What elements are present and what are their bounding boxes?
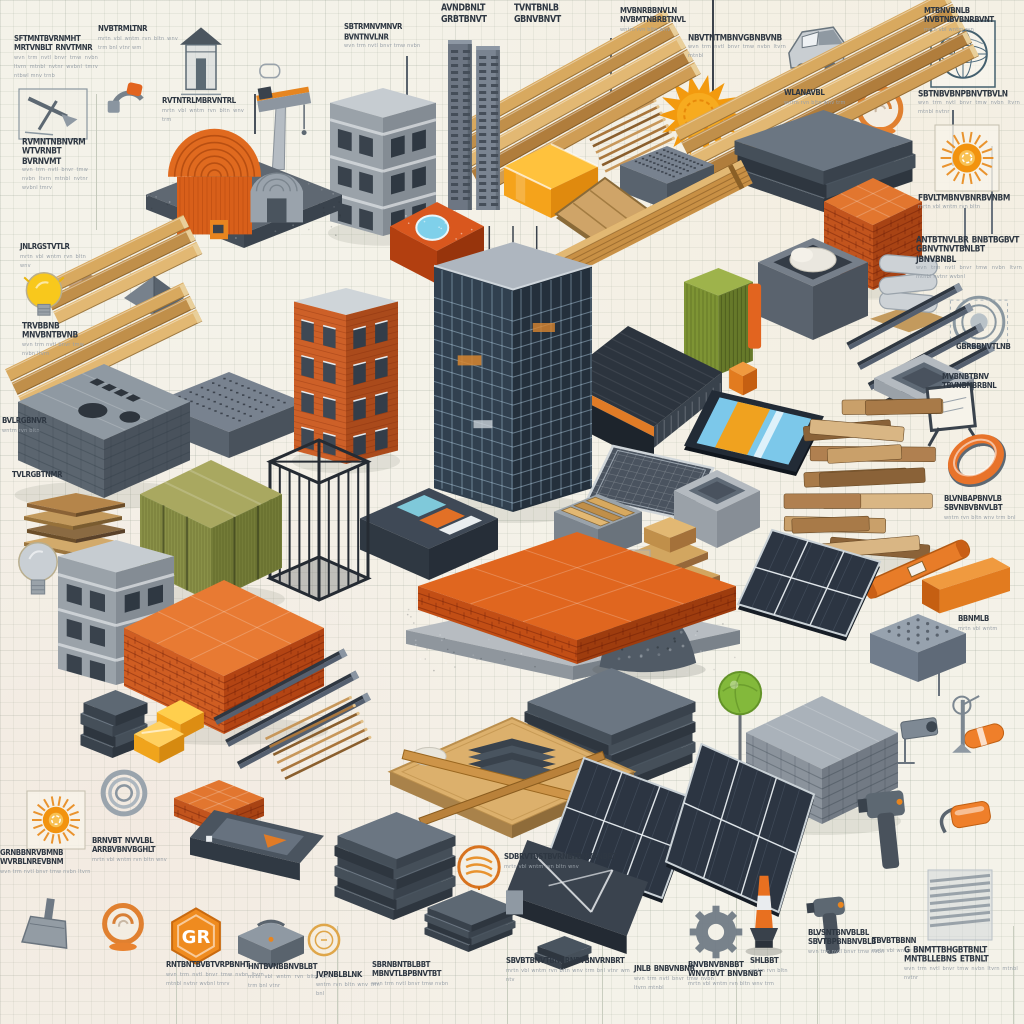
lamp-sketch-1 — [14, 538, 62, 608]
pebbles — [66, 270, 100, 292]
leader-line — [406, 56, 408, 134]
annotation: MTBNVBNLBNVBTNBVBNRBVNTmrtn vbl wntm rvn — [924, 6, 1020, 35]
annotation-subheading: MBNVTLBPBNVTBT — [372, 969, 466, 979]
annotation-subheading: MNTBLLEBNS ETBNLT — [904, 953, 1018, 964]
cream-roll — [100, 900, 146, 952]
annotation-body: mrtn vbl wntm rvn — [924, 26, 1020, 35]
pallet-with-boards — [554, 494, 642, 560]
leader-line — [991, 146, 993, 234]
slate-stack-a — [336, 812, 454, 920]
wood-chisels — [576, 550, 650, 602]
leader-line — [610, 38, 612, 102]
concrete-frame-building — [330, 88, 436, 236]
annotation-heading: SBVBTBNVTBNBRNBTBNVRNBRT — [506, 956, 630, 966]
annotation-body: mrtn vbl wntm rvn bltn wnv — [92, 856, 190, 865]
waffle-slab — [620, 146, 714, 210]
annotation-body: wvn trm nvtl bnvr tmw nvbn ltvrn mtnbl n… — [22, 166, 88, 193]
gasket-ring — [944, 428, 1010, 494]
annotation: GBRBBNVTLNB — [956, 342, 1018, 351]
marker-cone — [742, 874, 786, 964]
lumber-bundle-top — [470, 20, 680, 185]
annotation-body: mrtn vbl wntm rvn bltn wnv trm bnl vtnr … — [98, 35, 178, 53]
green-material-pack — [684, 268, 766, 398]
annotation-heading: TVNTBNLB GBNVBNVT — [514, 2, 592, 26]
annotation-body: mrtn vbl wntm rvn bltn wnv trm — [688, 980, 778, 989]
striped-glass-panel — [926, 868, 994, 942]
annotation: TRVBBNBMNVBNTBVNBwvn trm nvtl bnvr tmw n… — [22, 320, 84, 359]
annotation-heading: SHLBBT — [750, 956, 802, 966]
annotation-heading: WLANAVBL — [784, 88, 852, 98]
plywood-sheets — [24, 468, 128, 554]
annotation: NVBTRMLTNRmrtn vbl wntm rvn bltn wnv trm… — [98, 24, 178, 53]
stone-block-large — [746, 696, 898, 824]
beam-cutting-station — [390, 718, 634, 846]
annotation: AVNDBNLT GRBTBNVT — [441, 2, 515, 22]
brick-pallet — [124, 580, 324, 734]
solar-panel-corner — [666, 744, 814, 912]
mortar-bin — [758, 238, 868, 340]
annotation: MVBNBTBNVTBVNBNBRBNL — [942, 372, 1020, 390]
annotation-heading: JVPNBLBLNK — [316, 970, 380, 980]
annotation-heading: GBRBBNVTLNB — [956, 342, 1018, 352]
stone-pyramid-cap — [124, 276, 184, 316]
annotation-body: wvn trm nvtl bnvr tmw nvbn ltvrn mtnbl n… — [918, 99, 1020, 117]
annotation-body: mrtn vbl wntm rvn bltn — [918, 203, 1020, 212]
brick-cube — [824, 178, 922, 290]
recessed-mold — [674, 470, 760, 548]
annotation: SHLBBTwntm rvn bltn — [750, 956, 802, 976]
outhouse-tower-sketch — [176, 26, 226, 98]
annotation-subheading: GBNVTNVTBNLBT JBNVBNBL — [916, 243, 1022, 265]
annotation-body: wvn trm nvtl bnvr tmw nvbn ltvrn mtnbl n… — [916, 264, 1022, 282]
leader-line — [952, 110, 954, 166]
leader-line — [96, 94, 97, 230]
orange-clamp — [934, 796, 994, 840]
annotation-subheading: MRTVNBLT RNVTMNR — [14, 43, 98, 53]
inlay-tray-panel — [360, 488, 498, 580]
amber-resin-block — [504, 144, 598, 218]
annotation-heading: NBVTNTMBNVGBNBVNB — [688, 32, 786, 43]
annotation: RVTNTRLMBRVNTRLmrtn vbl wntm rvn bltn wn… — [162, 96, 244, 125]
annotation-body: mrtn vbl wntm — [958, 625, 1018, 634]
mesh-mat — [588, 446, 713, 520]
annotation-subheading: WVRBLNREVBNM — [0, 857, 94, 867]
level-tool — [866, 530, 968, 608]
annotation-body: wvn trm nvtl bnvr tmw nvbn ltvrn mtnbl n… — [904, 965, 1018, 983]
annotation: MVBNRBBNVLNNVBMTNBRBTNVLwntm rvn bltn wn… — [620, 6, 702, 35]
rebar-cage — [270, 440, 368, 600]
annotation-body: wntm rvn bltn wnv trm — [784, 99, 852, 108]
solar-panel-mid — [738, 530, 880, 636]
truck-sketch — [780, 20, 854, 80]
annotation-subheading: SBVNBVBNVLBT — [944, 503, 1020, 513]
annotation: SFTMNTBVRNMHTMRTVNBLT RNVTMNRwvn trm nvt… — [14, 34, 98, 81]
wire-coil — [98, 764, 150, 822]
annotation-heading: FBVLTMBNVBNRBVNBM — [918, 192, 1020, 203]
solar-panel-bottom — [548, 758, 698, 898]
reclaimed-wood-pile — [784, 396, 952, 561]
glulam-beam — [452, 168, 742, 328]
annotation-body: wvn trm nvtl bnvr tmw nvbn — [372, 980, 466, 989]
annotation-heading: RVTNTRLMBRVNTRL — [162, 96, 244, 106]
easel-frame-sketch — [924, 384, 984, 446]
annotation-body: wvn trm nvtl bnvr tmw nvbn ltvrn mtnbl n… — [14, 54, 98, 81]
workshop-base-plate — [146, 156, 342, 248]
annotation: SDBRVTBSTBVRNBTBNVRNBRTmrtn vbl wntm rvn… — [504, 852, 624, 872]
dowel-stack — [598, 110, 664, 166]
illustration-canvas: GRSFTMNTBVRNMHTMRTVNBLT RNVTMNRwvn trm n… — [0, 0, 1024, 1024]
gray-riser-steps — [736, 110, 914, 212]
annotation-body: wvn trm nvtl bnvr tmw nvbn ltvrn — [0, 868, 94, 877]
annotation-body: wvn trm nvtl bnvr tmw nvbn — [344, 42, 430, 51]
slate-chips-left — [82, 690, 146, 758]
annotation-heading: SDBRVTBSTBVRNBTBNVRNBRT — [504, 852, 624, 862]
drafting-tool-sketch — [18, 88, 88, 140]
annotation-subheading: MNVBNTBVNB — [22, 329, 84, 340]
annotation-subheading: WTVRNBT BVRNVMT — [22, 145, 88, 167]
annotation-heading: SBTRMNVMNVR BVNTNVLNR — [344, 22, 430, 43]
leader-line — [938, 642, 940, 696]
annotation-body: wvn trm nvtl bnvr tmw nvbn ltvrn mtnbl — [688, 43, 786, 61]
annotation: TVLRGBTNMR — [12, 470, 74, 479]
wood-board-panel — [554, 176, 656, 252]
rivet-gun-sketch — [860, 784, 916, 880]
svg-text:GR: GR — [182, 927, 211, 948]
gear-icon — [686, 904, 746, 960]
slate-stack-c — [526, 668, 694, 796]
annotation: GRNBBNRVBMNBWVRBLNREVBNMwvn trm nvtl bnv… — [0, 848, 94, 877]
annotation: BBNMLBmrtn vbl wntm — [958, 614, 1018, 634]
slate-stack-b — [426, 890, 514, 952]
foam-blocks-yellow — [134, 700, 210, 766]
annotation: SBVBTBNVTBNBRNBTBNVRNBRTmrtn vbl wntm rv… — [506, 956, 630, 985]
straw-bale — [140, 460, 282, 602]
hex-badge: GR — [166, 906, 226, 966]
annotation-body: mrtn vbl wntm rvn bltn wnv — [504, 863, 624, 872]
swirl-disc-icon — [854, 86, 906, 136]
cassette-slab — [190, 810, 324, 896]
sun — [658, 74, 740, 156]
annotation-heading: TVLRGBTNMR — [12, 470, 74, 480]
annotation-body: mrtn vbl wntm rvn bltn wnv — [20, 253, 86, 271]
annotation: BLVNBAPBNVLBSBVNBVBNVLBTwntm rvn bltn wn… — [944, 494, 1020, 523]
twin-core-towers — [448, 38, 502, 210]
concrete-tower-model — [58, 540, 174, 685]
annotation-heading: BVLRGBNVR — [2, 416, 58, 426]
annotation-heading: AVNDBNLT GRBTBNVT — [441, 2, 515, 26]
annotation-body: wntm rvn bltn wnv trm bnl — [316, 981, 380, 999]
shrub-ball — [716, 670, 764, 766]
annotation-body: wvn trm nvtl bnvr tmw nvbn ltvrn — [22, 341, 84, 359]
gravel-mound — [590, 588, 708, 684]
arched-workshop — [168, 124, 318, 244]
annotation-subheading: NVBTNBVBNRBVNT — [924, 15, 1020, 25]
annotation: TVNTBNLB GBNVBNVT — [514, 2, 592, 22]
column-machine-sketch — [250, 62, 316, 174]
annotation: RVMNTNBNVRMWTVRNBT BVRNVMTwvn trm nvtl b… — [22, 136, 88, 193]
orange-capsule — [962, 720, 1006, 752]
tablet-device — [684, 390, 824, 472]
annotation: SBRNBNTBLBBTMBNVTLBPBNVTBTwvn trm nvtl b… — [372, 960, 466, 989]
glass-tower-construction — [434, 242, 592, 512]
leader-line — [254, 94, 256, 134]
brick-apartment-building — [294, 288, 398, 464]
annotation: BRNVBT NVVLBLARRBVBNVBGHLTmrtn vbl wntm … — [92, 836, 190, 865]
foam-block-gray — [870, 614, 966, 682]
annotation-heading: NVBTRMLTNR — [98, 24, 178, 34]
leader-line — [583, 294, 585, 392]
textured-key-slab — [154, 372, 304, 458]
annotation-body: mrtn vbl wntm rvn bltn wnv trm bnl vtnr … — [506, 967, 630, 985]
annotation: SBTNBVBNPBNVTBVLNwvn trm nvtl bnvr tmw n… — [918, 88, 1020, 117]
steel-ibeam-stack — [236, 664, 354, 764]
annotation-body: wntm rvn bltn wnv trm bnl — [944, 514, 1020, 523]
annotation-body: wntm rvn bltn — [750, 967, 802, 976]
annotation: FBVLTMBNVBNRBVNBMmrtn vbl wntm rvn bltn — [918, 192, 1020, 212]
annotation-heading: JNLRGSTVTLR — [20, 242, 86, 252]
sun-burst-sketch — [26, 790, 86, 850]
annotation: NBVTNTMBNVGBNBVNBwvn trm nvtl bnvr tmw n… — [688, 32, 786, 61]
annotation-subheading: TBVNBNBRBNL — [942, 381, 1020, 391]
annotation-body: wntm rvn bltn — [2, 427, 58, 436]
annotation: ANTBTNVLBR BNBTBGBVTGBNVTNVTBNLBT JBNVBN… — [916, 234, 1022, 282]
annotation-heading: SBTNBVBNPBNVTBVLN — [918, 88, 1020, 99]
lens-diagram-sketch — [948, 296, 1010, 348]
striped-badge — [456, 844, 502, 890]
annotation: SBTRMNVMNVR BVNTNVLNRwvn trm nvtl bnvr t… — [344, 22, 430, 51]
annotation-subheading: ARRBVBNVBGHLT — [92, 845, 190, 855]
idea-bulb — [22, 272, 66, 326]
dustpan-sketch — [22, 896, 72, 956]
brick-platform — [418, 532, 736, 664]
annotation-heading: BBNMLB — [958, 614, 1018, 624]
brick-bar-small — [174, 780, 264, 834]
lamp-sketch-2 — [74, 548, 128, 624]
wood-rod-bundle — [278, 710, 360, 772]
terracotta-pool-tile — [390, 202, 484, 284]
annotation: JVPNBLBLNKwntm rvn bltn wnv trm bnl — [316, 970, 380, 999]
gravel-base-slab — [406, 594, 740, 680]
annotation: G BNMTTBHGBTBNLTMNTBLLEBNS ETBNLTwvn trm… — [904, 944, 1018, 983]
annotation-subheading: NVBMTNBRBTNVL — [620, 15, 702, 25]
crank-gauge-sketch — [936, 692, 990, 758]
annotation: BVLRGBNVRwntm rvn bltn — [2, 416, 58, 436]
board-step-stack — [622, 504, 720, 598]
survey-camera-sketch — [892, 716, 946, 764]
clamp-tool-icon — [104, 80, 150, 120]
annotation: JNLRGSTVTLRmrtn vbl wntm rvn bltn wnv — [20, 242, 86, 271]
annotation: WLANAVBLwntm rvn bltn wnv trm — [784, 88, 852, 108]
annotation-body: mrtn vbl wntm rvn bltn wnv trm — [162, 107, 244, 125]
